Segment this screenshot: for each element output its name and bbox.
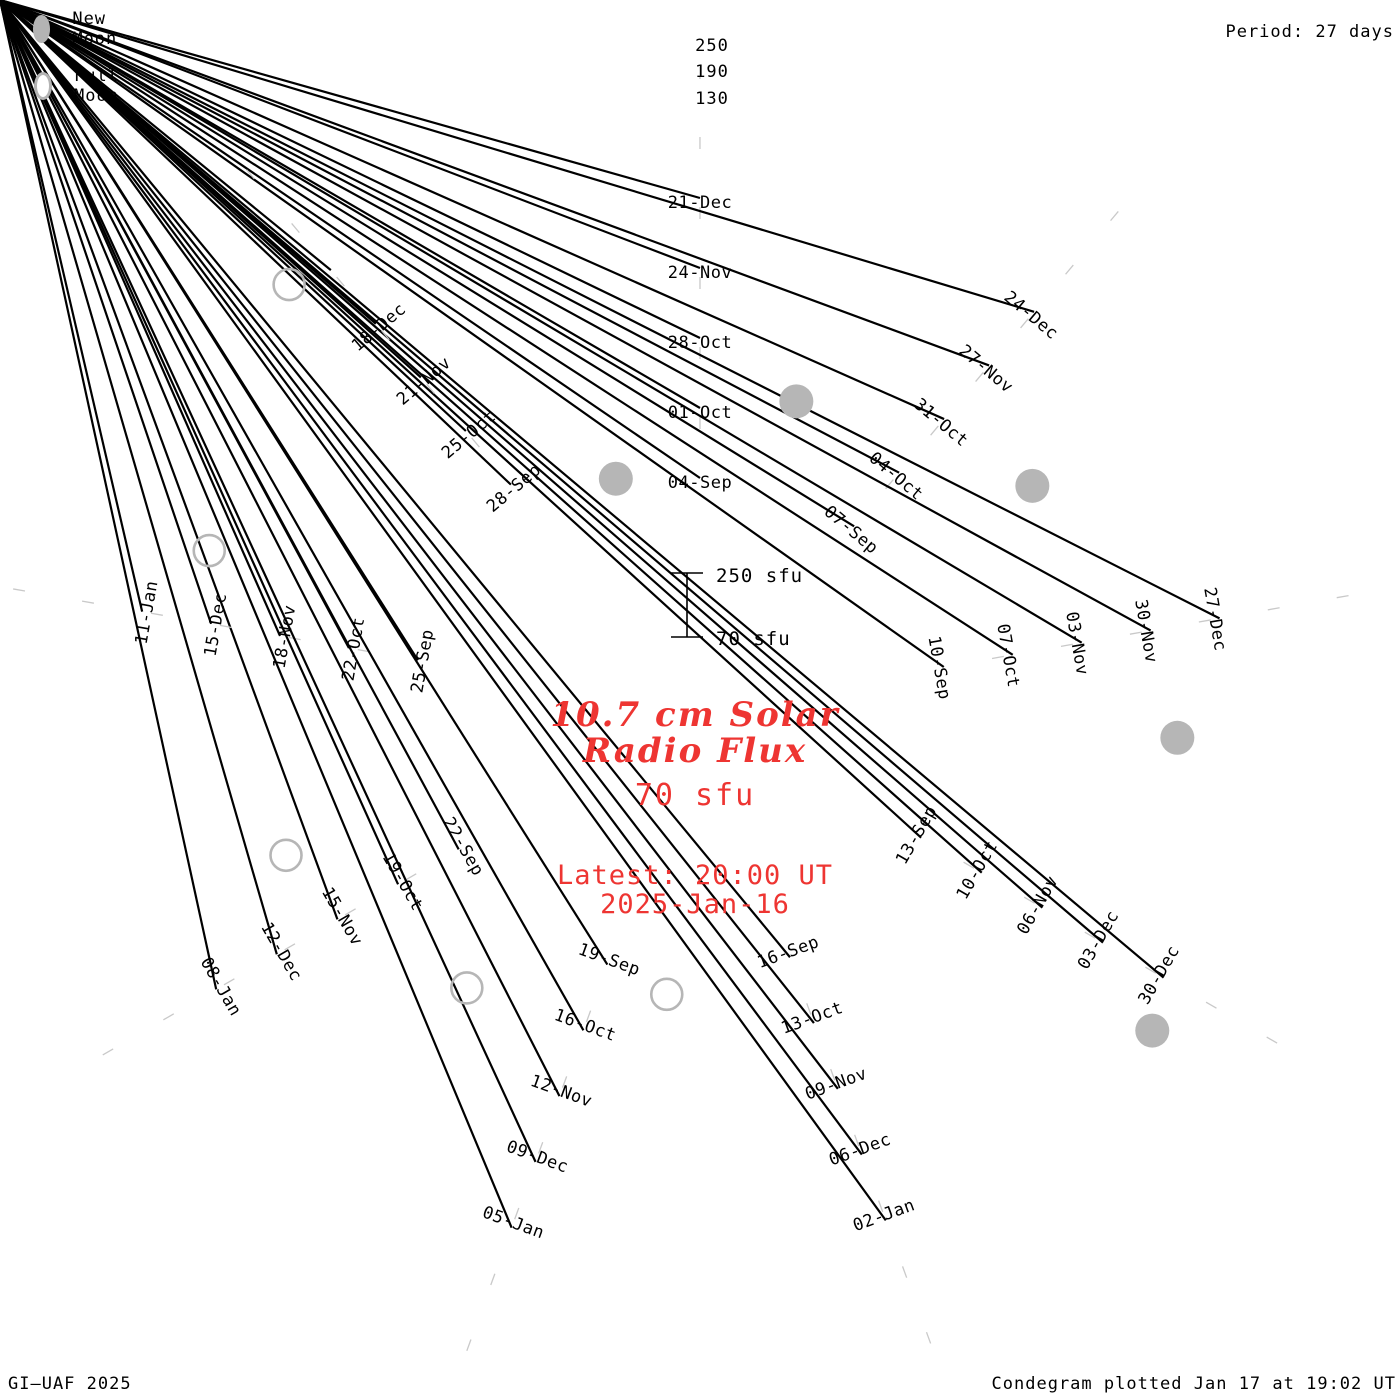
boundary-line-3day (0, 0, 1042, 908)
chart-title-line1: 10.7 cm Solar (445, 698, 945, 732)
new-moon-label: New Moon (72, 9, 128, 49)
grid-tick (1268, 608, 1280, 610)
new-moon-marker (779, 384, 813, 418)
date-label: 22-Oct (338, 616, 369, 683)
date-label: 06-Dec (826, 1129, 893, 1170)
date-label: 15-Nov (317, 884, 367, 950)
date-label: 21-Dec (668, 193, 732, 213)
date-label: 16-Sep (755, 932, 822, 973)
plotted-label: Condegram plotted Jan 17 at 19:02 UT (992, 1374, 1396, 1394)
boundary-line-3day (0, 0, 1034, 312)
radial-scale-250: 250 (652, 36, 772, 56)
date-label: 27-Dec (1199, 586, 1230, 653)
boundary-line-3day (0, 0, 989, 365)
boundary-line-3day (0, 0, 944, 419)
scalebar-top-label: 250 sfu (716, 565, 803, 587)
date-label: 03-Dec (1074, 907, 1124, 973)
chart-title-line2: Radio Flux (445, 734, 945, 768)
date-label: 04-Oct (865, 448, 927, 505)
date-label: 06-Nov (1013, 872, 1063, 938)
date-label: 30-Nov (1130, 598, 1161, 665)
date-label: 13-Oct (779, 998, 846, 1039)
boundary-line-3day (0, 0, 512, 1228)
new-moon-marker (1135, 1014, 1169, 1048)
spiral-chart: 04-Sep07-Sep10-Sep13-Sep16-Sep19-Sep22-S… (0, 0, 1349, 1351)
grid-tick (163, 1014, 173, 1020)
grid-tick (903, 1266, 907, 1277)
date-label: 10-Sep (923, 634, 954, 701)
date-label: 09-Nov (803, 1064, 870, 1105)
period-label: Period: 27 days (1225, 22, 1394, 42)
boundary-line-3day (0, 0, 398, 884)
full-moon-marker (194, 535, 225, 566)
latest-date: 2025-Jan-16 (445, 891, 945, 919)
legend-new-moon: New Moon (33, 9, 128, 49)
date-label: 10-Oct (953, 837, 1003, 903)
date-label: 19-Oct (378, 849, 428, 915)
date-label: 19-Sep (575, 939, 642, 980)
new-moon-marker (1160, 721, 1194, 755)
date-label: 24-Nov (668, 263, 732, 283)
boundary-line-3day (0, 0, 1164, 978)
new-moon-marker (1015, 469, 1049, 503)
legend-full-moon: Full Moon (34, 66, 129, 106)
date-label: 25-Sep (407, 628, 438, 695)
date-label: 30-Dec (1135, 942, 1185, 1008)
scalebar-bottom-label: 70 sfu (716, 628, 791, 650)
boundary-line-3day (0, 0, 1151, 631)
date-label: 03-Nov (1061, 610, 1092, 677)
full-moon-label: Full Moon (74, 66, 129, 106)
boundary-line-3day (0, 0, 277, 954)
grid-tick (491, 1274, 495, 1285)
date-label: 15-Dec (201, 591, 232, 658)
date-label: 31-Oct (910, 395, 972, 452)
date-label: 08-Jan (196, 954, 246, 1020)
date-label: 12-Nov (528, 1071, 595, 1112)
grid-tick (1066, 265, 1074, 274)
full-moon-marker (271, 840, 302, 871)
date-label: 02-Jan (850, 1195, 917, 1236)
full-moon-marker (651, 979, 682, 1010)
date-label: 09-Dec (504, 1137, 571, 1178)
grid-tick (1267, 1037, 1277, 1043)
grid-tick (292, 223, 300, 232)
latest-time: Latest: 20:00 UT (445, 862, 945, 890)
date-label: 18-Nov (270, 603, 301, 670)
new-moon-marker (599, 462, 633, 496)
date-label: 01-Oct (668, 403, 732, 423)
grid-tick (103, 1049, 113, 1055)
date-label: 12-Dec (256, 919, 306, 985)
date-label: 04-Sep (668, 473, 732, 493)
full-moon-icon (34, 72, 52, 100)
grid-tick (467, 1340, 471, 1351)
grid-tick (1337, 596, 1349, 598)
condegram-page: 04-Sep07-Sep10-Sep13-Sep16-Sep19-Sep22-S… (0, 0, 1400, 1400)
boundary-line-3day (0, 0, 1082, 643)
radial-scale-130: 130 (652, 89, 772, 109)
credit-label: GI–UAF 2025 (8, 1374, 132, 1394)
date-label: 16-Oct (551, 1005, 618, 1046)
new-moon-icon (33, 15, 50, 43)
date-label: 28-Oct (668, 333, 732, 353)
current-flux-value: 70 sfu (445, 778, 945, 813)
date-label: 24-Dec (1000, 287, 1062, 344)
grid-tick (1206, 1002, 1216, 1008)
flux-scale-bar (671, 573, 703, 637)
date-label: 27-Nov (955, 341, 1017, 398)
radial-scale-190: 190 (652, 62, 772, 82)
grid-tick (927, 1332, 931, 1343)
grid-tick (82, 601, 94, 603)
date-label: 05-Jan (480, 1203, 547, 1244)
date-label: 07-Oct (992, 622, 1023, 689)
grid-tick (1111, 211, 1119, 220)
grid-tick (13, 589, 25, 591)
